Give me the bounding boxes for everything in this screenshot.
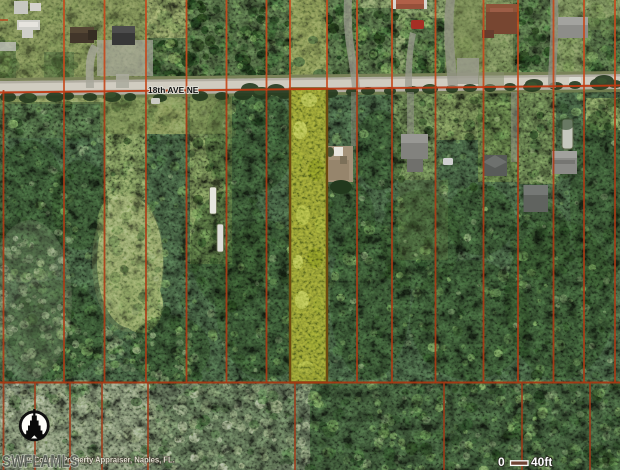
svg-text:SWFLAMLS: SWFLAMLS	[2, 451, 79, 470]
svg-text:40ft: 40ft	[531, 455, 552, 469]
svg-text:0: 0	[498, 455, 505, 469]
svg-text:18th AVE NE: 18th AVE NE	[148, 85, 199, 95]
